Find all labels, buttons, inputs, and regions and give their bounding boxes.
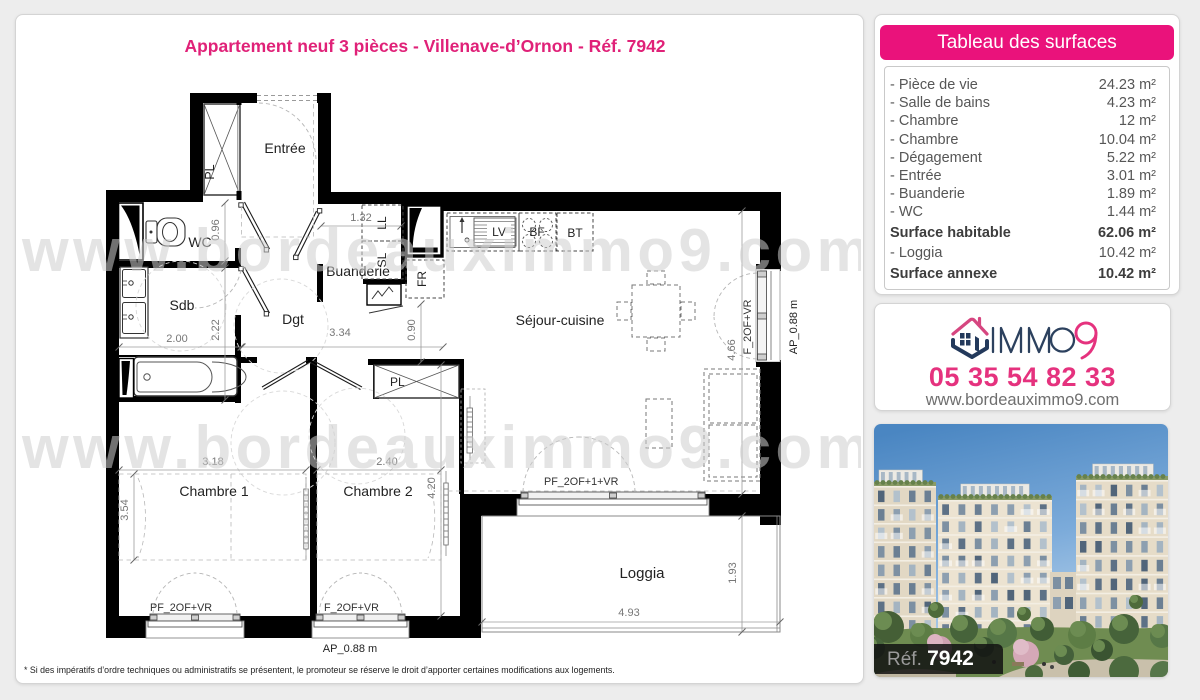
svg-text:3.54: 3.54 — [119, 499, 131, 520]
svg-text:F_2OF+VR: F_2OF+VR — [324, 602, 379, 614]
svg-text:AP_0.88 m: AP_0.88 m — [323, 643, 377, 655]
svg-text:Loggia: Loggia — [619, 565, 665, 582]
svg-text:PL: PL — [390, 375, 405, 389]
svg-text:Dgt: Dgt — [282, 311, 304, 327]
svg-text:PL: PL — [203, 164, 217, 179]
svg-text:Séjour-cuisine: Séjour-cuisine — [516, 312, 605, 328]
svg-text:4.93: 4.93 — [618, 607, 639, 619]
svg-text:Sdb: Sdb — [170, 297, 195, 313]
svg-text:3.34: 3.34 — [329, 327, 350, 339]
svg-text:Chambre 1: Chambre 1 — [179, 483, 248, 499]
svg-text:4.66: 4.66 — [726, 339, 738, 360]
svg-text:F_2OF+VR: F_2OF+VR — [742, 299, 754, 354]
svg-text:Chambre 2: Chambre 2 — [343, 483, 412, 499]
svg-text:2.00: 2.00 — [166, 333, 187, 345]
svg-text:0.90: 0.90 — [406, 319, 418, 340]
svg-text:AP_0.88 m: AP_0.88 m — [788, 300, 800, 354]
svg-text:2.22: 2.22 — [210, 319, 222, 340]
svg-text:1.93: 1.93 — [727, 562, 739, 583]
svg-text:www.bordeauximmo9.com: www.bordeauximmo9.com — [21, 414, 874, 481]
svg-text:PF_2OF+VR: PF_2OF+VR — [150, 602, 212, 614]
svg-text:Entrée: Entrée — [264, 140, 305, 156]
svg-text:www.bordeauximmo9.com: www.bordeauximmo9.com — [21, 217, 874, 284]
